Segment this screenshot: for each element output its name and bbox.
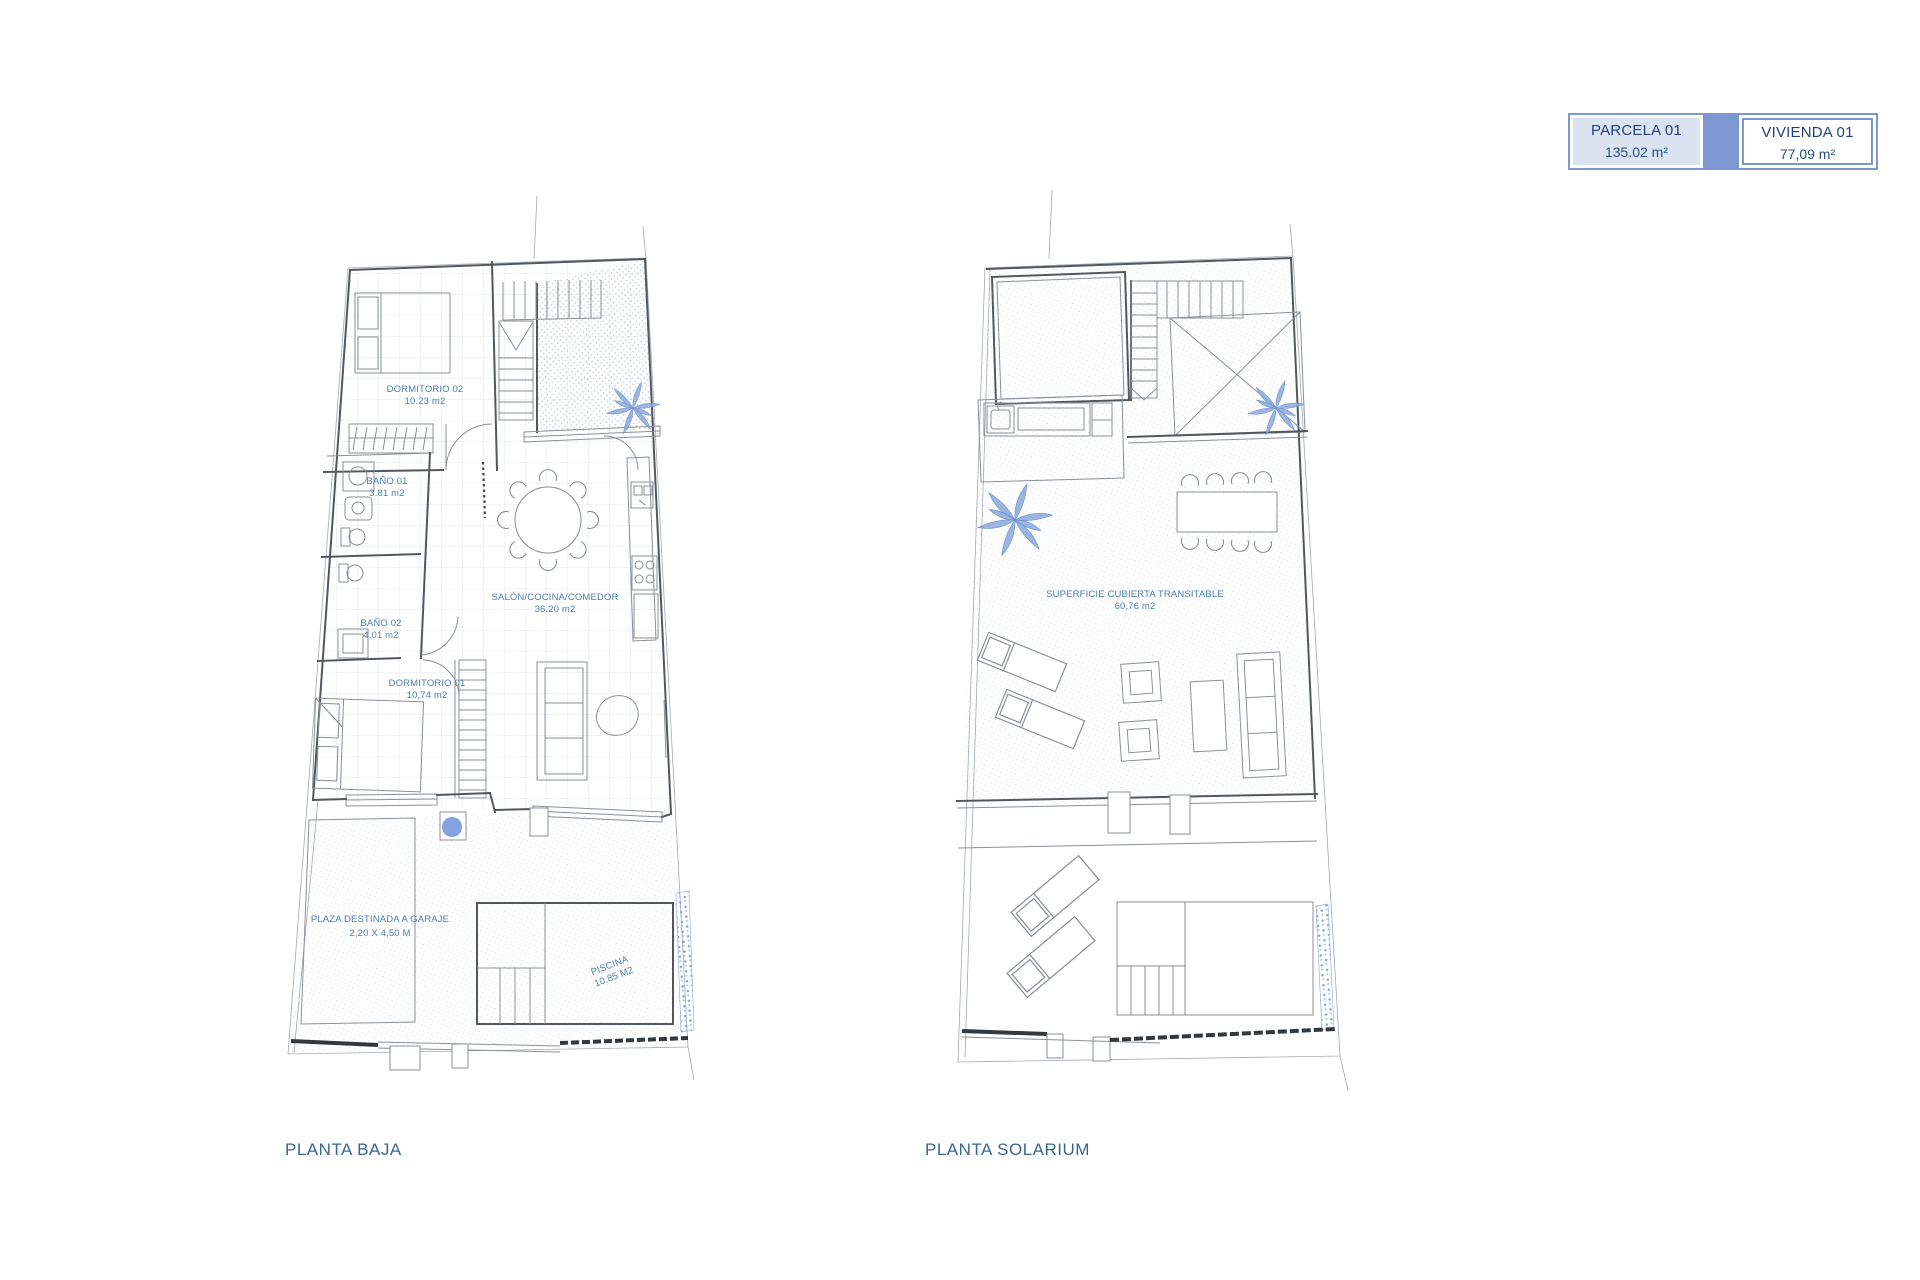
legend-vivienda-title: VIVIENDA 01 [1744, 124, 1871, 141]
legend-vivienda-area: 77,09 m² [1744, 146, 1871, 162]
floorplan-page: { "legend": { "parcela_title": "PARCELA … [0, 0, 1920, 1280]
mosaic-strip [1316, 904, 1334, 1030]
sun-lounger [1011, 856, 1099, 937]
sun-lounger [1007, 917, 1095, 998]
legend-vivienda-cell: VIVIENDA 01 77,09 m² [1742, 118, 1873, 165]
dormitorio-02-label: DORMITORIO 02 [387, 384, 464, 395]
planta-baja-title: PLANTA BAJA [285, 1140, 402, 1160]
dormitorio-01-area: 10,74 m2 [407, 690, 448, 701]
planta-solarium-title: PLANTA SOLARIUM [925, 1140, 1090, 1160]
legend-parcela-title: PARCELA 01 [1573, 122, 1700, 139]
legend-box: PARCELA 01 135.02 m² VIVIENDA 01 77,09 m… [1568, 113, 1878, 170]
superficie-label: SUPERFICIE CUBIERTA TRANSITABLE [1046, 589, 1224, 600]
legend-parcela-cell: PARCELA 01 135.02 m² [1573, 118, 1700, 165]
stair-block [1117, 902, 1313, 1015]
legend-parcela-area: 135.02 m² [1573, 144, 1700, 160]
shower-dot-icon [442, 817, 462, 837]
lower-terrace [962, 856, 1335, 1061]
plan-planta-baja: DORMITORIO 02 10.23 m2 BAÑO 01 3.81 m2 B… [288, 196, 694, 1080]
dormitorio-01-label: DORMITORIO 01 [389, 678, 466, 689]
salon-area: 36.20 m2 [535, 604, 576, 615]
plan-planta-solarium: SUPERFICIE CUBIERTA TRANSITABLE 60,76 m2 [957, 190, 1348, 1090]
coffee-table [1190, 680, 1227, 752]
floor-plans-drawing: DORMITORIO 02 10.23 m2 BAÑO 01 3.81 m2 B… [0, 0, 1920, 1280]
bano-02-label: BAÑO 02 [360, 618, 401, 629]
superficie-area: 60,76 m2 [1115, 601, 1156, 612]
garaje-area: 2,20 X 4,50 M [349, 928, 410, 939]
bano-02-area: 4,01 m2 [363, 630, 398, 641]
dormitorio-02-area: 10.23 m2 [405, 396, 446, 407]
garaje-label: PLAZA DESTINADA A GARAJE [311, 914, 449, 925]
bano-01-area: 3.81 m2 [369, 488, 404, 499]
salon-label: SALÓN/COCINA/COMEDOR [491, 592, 618, 603]
legend-divider [1703, 115, 1739, 168]
bano-01-label: BAÑO 01 [366, 476, 407, 487]
sofa [1237, 652, 1286, 778]
